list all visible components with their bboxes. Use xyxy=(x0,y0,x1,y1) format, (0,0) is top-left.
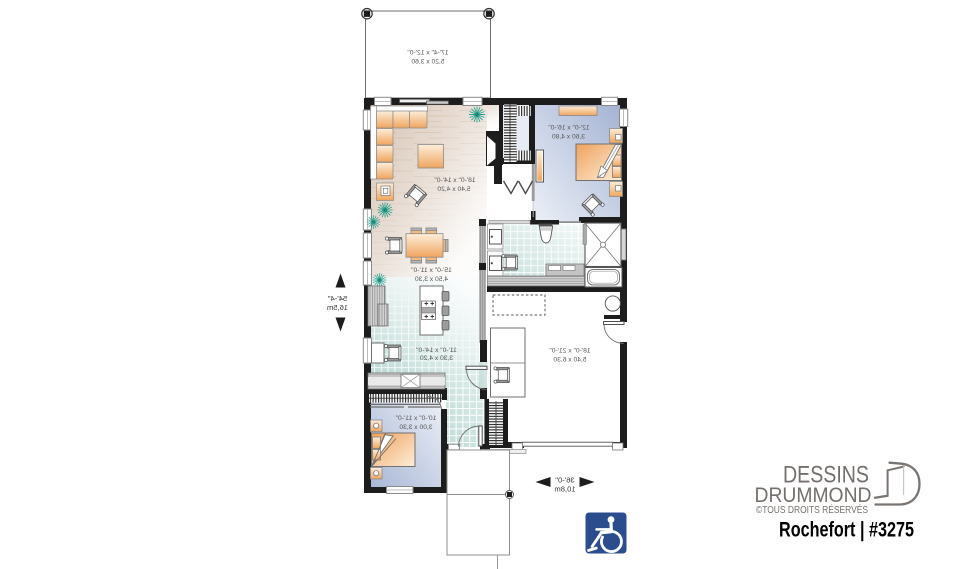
svg-text:36'-0": 36'-0" xyxy=(555,476,575,485)
svg-text:DRUMMOND: DRUMMOND xyxy=(755,483,872,507)
svg-text:12'-0" x 16'-0": 12'-0" x 16'-0" xyxy=(548,125,590,132)
svg-text:16,5m: 16,5m xyxy=(327,303,348,312)
svg-text:3,00 x 3,30: 3,00 x 3,30 xyxy=(399,424,432,431)
svg-text:17'-4" x 12'-0": 17'-4" x 12'-0" xyxy=(407,50,449,57)
svg-text:5,40 x 4,20: 5,40 x 4,20 xyxy=(437,186,470,193)
svg-text:5,20 x 3,60: 5,20 x 3,60 xyxy=(411,59,444,66)
svg-text:18'-0" x 14'-0": 18'-0" x 14'-0" xyxy=(434,177,476,184)
svg-text:3,30 x 4,20: 3,30 x 4,20 xyxy=(420,355,453,362)
svg-text:4,50 x 3,30: 4,50 x 3,30 xyxy=(415,276,448,283)
svg-text:3,60 x 4,80: 3,60 x 4,80 xyxy=(552,134,585,141)
svg-text:10'-0" x 11'-0": 10'-0" x 11'-0" xyxy=(395,415,436,422)
svg-text:18'-0" x 21'-0": 18'-0" x 21'-0" xyxy=(549,348,591,355)
svg-text:11'-0" x 14'-0": 11'-0" x 14'-0" xyxy=(416,347,457,354)
svg-text:Rochefort | #3275: Rochefort | #3275 xyxy=(779,518,914,542)
svg-text:15'-0" x 11'-0": 15'-0" x 11'-0" xyxy=(411,267,452,274)
svg-text:5,40 x 6,30: 5,40 x 6,30 xyxy=(553,357,586,364)
svg-text:54'-4": 54'-4" xyxy=(328,294,348,303)
svg-text:©TOUS DROITS RÉSERVÉS: ©TOUS DROITS RÉSERVÉS xyxy=(756,505,868,516)
svg-text:10,8m: 10,8m xyxy=(554,485,575,494)
